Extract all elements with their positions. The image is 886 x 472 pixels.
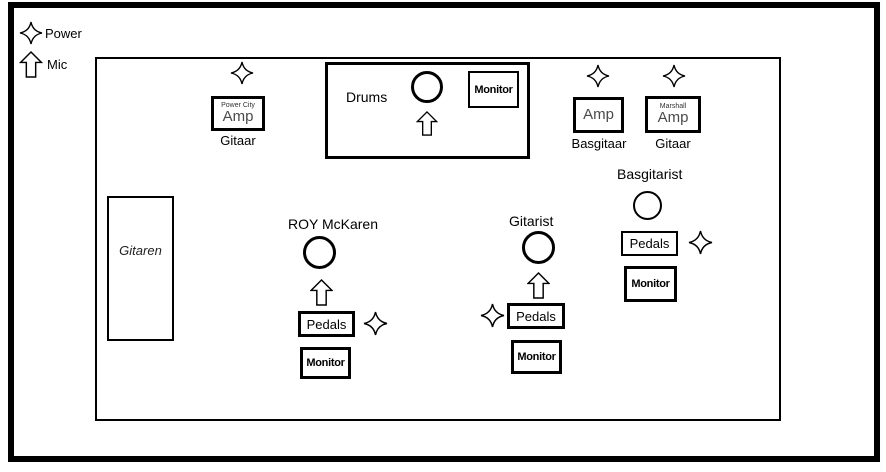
power-icon — [586, 64, 610, 88]
bass-amp-box: Amp — [573, 97, 624, 133]
marshall-amp-box: Marshall Amp — [645, 96, 701, 133]
bassist-pedals-label: Pedals — [630, 236, 670, 251]
legend-power-label: Power — [45, 27, 82, 40]
bassist-position-circle — [633, 191, 662, 220]
drummer-position-circle — [411, 71, 443, 103]
bassist-pedals-box: Pedals — [621, 231, 678, 256]
guitarist-monitor-label: Monitor — [517, 351, 555, 363]
power-icon — [230, 61, 254, 85]
bassist-monitor-box: Monitor — [624, 266, 677, 302]
marshall-amp-label: Amp — [658, 110, 689, 126]
mic-icon — [527, 272, 550, 299]
guitar-amp-box: Power City Amp — [211, 96, 265, 131]
power-icon — [480, 303, 505, 328]
vocalist-pedals-box: Pedals — [298, 311, 355, 337]
vocalist-position-circle — [303, 236, 336, 269]
guitarist-name: Gitarist — [509, 214, 553, 228]
power-icon — [688, 230, 713, 255]
guitarist-pedals-box: Pedals — [507, 303, 565, 329]
guitarist-monitor-box: Monitor — [511, 340, 562, 374]
drums-monitor-label: Monitor — [474, 84, 512, 96]
guitar-rack-label: Gitaren — [119, 243, 162, 258]
power-icon — [363, 311, 388, 336]
bass-amp-label: Amp — [583, 107, 614, 123]
bassist-monitor-label: Monitor — [631, 278, 669, 290]
drums-monitor-box: Monitor — [468, 71, 519, 108]
vocalist-name: ROY McKaren — [288, 217, 378, 231]
mic-icon — [416, 111, 438, 136]
mic-icon — [19, 51, 43, 78]
drums-label: Drums — [346, 89, 387, 105]
guitar-rack-box: Gitaren — [107, 196, 174, 341]
legend-mic-label: Mic — [47, 58, 67, 71]
vocalist-monitor-label: Monitor — [306, 357, 344, 369]
guitar-amp-instrument-label: Gitaar — [198, 134, 278, 147]
marshall-amp-instrument-label: Gitaar — [633, 137, 713, 150]
guitarist-position-circle — [522, 231, 555, 264]
mic-icon — [310, 279, 333, 306]
guitarist-pedals-label: Pedals — [516, 309, 556, 324]
bass-amp-instrument-label: Basgitaar — [559, 137, 639, 150]
power-icon — [662, 64, 686, 88]
vocalist-pedals-label: Pedals — [307, 317, 347, 332]
bassist-name: Basgitarist — [617, 167, 682, 181]
guitar-amp-label: Amp — [223, 109, 254, 125]
vocalist-monitor-box: Monitor — [300, 347, 351, 379]
power-icon — [19, 21, 43, 45]
